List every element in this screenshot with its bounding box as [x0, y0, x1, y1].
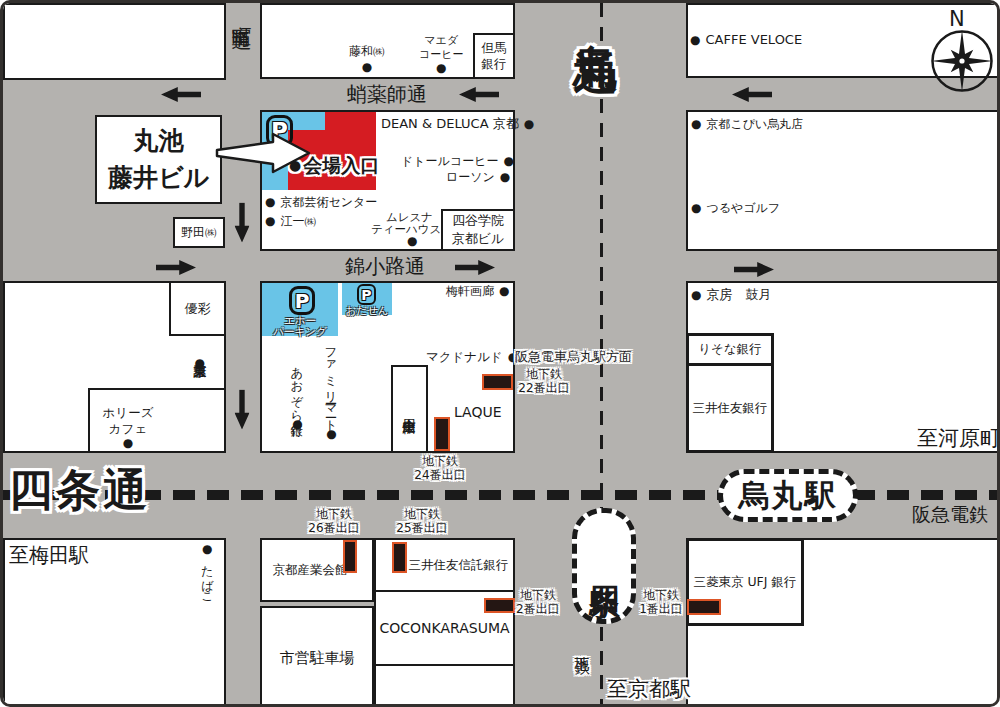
baiken-dot: ● [499, 285, 509, 297]
exit1-l2: 1番出口 [636, 602, 686, 616]
subway-exit24-marker [434, 417, 450, 451]
eho-parking-label: エホー パーキング [262, 315, 338, 337]
hollys-dot: ● [123, 437, 133, 449]
subway-exit2-marker [484, 598, 515, 613]
street-label-muromachi: 室町通 [230, 10, 254, 16]
poi-mcdonalds: マクドナルド ● [426, 349, 518, 364]
poi-kyobo-kogetsu: ● 京房 鼓月 [691, 287, 771, 303]
cocon-label: COCONKARASUMA [379, 620, 509, 636]
poi-doutor: ドトールコーヒー ● [401, 154, 514, 168]
exit26-l1: 地下鉄 [305, 507, 363, 521]
box-yusai: 優彩 [169, 281, 226, 336]
box-maruike-fujii: 丸池 藤井ビル [95, 115, 222, 204]
access-map: 室町通 藤和㈱ ● マエダ コーヒー ● 但馬 銀行 蛸薬師通 丸池 藤井ビル … [0, 0, 1000, 707]
shijo-station-label: 四条駅 [584, 563, 625, 569]
poi-mlesna-dot: ● [407, 235, 417, 247]
poi-lawson: ローソン ● [446, 170, 510, 184]
odasen-p: P [361, 287, 371, 303]
hankyu-direction-label: 阪急電車烏丸駅方面 [515, 349, 632, 365]
shijo-station-badge: 四条駅 [572, 508, 636, 624]
arrow-left-takoyakushi-2 [459, 87, 499, 102]
koichi-label: 江一㈱ [280, 214, 316, 228]
poi-kyoto-kopii: ● 京都こぴい烏丸店 [691, 117, 803, 131]
caffe-veloce-dot: ● [690, 34, 700, 46]
arrow-left-takoyakushi-1 [161, 87, 201, 102]
venue-entrance-text: 会場入口 [303, 154, 379, 177]
exit24-l1: 地下鉄 [411, 454, 469, 468]
aozora-label: あおぞら銀行 [290, 358, 305, 415]
poi-baiken-gallery: 梅軒画廊 ● [446, 284, 509, 298]
subway-exit25-label: 地下鉄 25番出口 [393, 507, 451, 536]
poi-maeda-coffee: マエダ コーヒー ● [419, 34, 464, 74]
odasen-parking-label: おだせん [342, 304, 392, 317]
doutor-dot: ● [503, 155, 513, 167]
tabako-label: たばこ [200, 557, 214, 598]
smtb-label: 三井住友信託銀行 [409, 557, 509, 574]
box-smbc: 三井住友銀行 [686, 363, 774, 453]
tajima-l2: 銀行 [482, 56, 507, 72]
arrow-right-nishikikoji-1 [156, 260, 196, 275]
compass-rose-icon [928, 27, 996, 95]
smbc-label: 三井住友銀行 [693, 400, 768, 417]
direction-to-kawaramachi: 至河原町 [917, 426, 1000, 451]
lawson-dot: ● [500, 171, 510, 183]
poi-hollys: ホリーズ カフェ ● [99, 405, 157, 449]
subway-exit1-marker [687, 599, 721, 615]
subway-label-bottom: 地下鉄 [573, 644, 591, 650]
baiken-label: 梅軒画廊 [446, 284, 494, 298]
box-chuo-shinkin: 中央信用金庫 [391, 365, 428, 453]
subway-exit25-marker [392, 542, 407, 573]
art-center-label: 京都芸術センター [280, 195, 377, 209]
exit25-l2: 25番出口 [393, 521, 451, 535]
box-noda: 野田㈱ [173, 217, 225, 248]
poi-towa: 藤和㈱ ● [349, 44, 385, 73]
arrow-down-muromachi-2 [235, 390, 250, 430]
doutor-label: ドトールコーヒー [401, 154, 498, 168]
ufj-label: 三菱東京 UFJ 銀行 [694, 574, 797, 591]
subway-exit22-label: 地下鉄 22番出口 [515, 367, 573, 396]
dean-deluca-dot: ● [524, 118, 534, 130]
poi-towa-dot: ● [362, 61, 372, 73]
box-tajima-bank: 但馬 銀行 [473, 33, 515, 79]
mcdonalds-label: マクドナルド [426, 349, 503, 364]
exit22-l2: 22番出口 [515, 381, 573, 395]
poi-tsuruya-golf: ● つるやゴルフ [691, 201, 780, 215]
street-label-takoyakushi: 蛸薬師通 [347, 82, 427, 106]
poi-family-mart: ファミリーマート ● [324, 339, 339, 440]
poi-caffe-veloce: ● CAFFE VELOCE [690, 32, 802, 48]
noda-label: 野田㈱ [181, 224, 217, 241]
poi-maeda-l2: コーヒー [419, 48, 464, 61]
hollys-l2: カフェ [109, 421, 147, 436]
parking-icon-odasen: P [357, 284, 376, 305]
box-risona-bank: りそな銀行 [686, 333, 774, 366]
parking-icon-eho: P [289, 286, 315, 315]
koichi-dot: ● [265, 215, 275, 227]
kopii-dot: ● [691, 118, 701, 130]
arrow-right-nishikikoji-2 [455, 260, 495, 275]
art-center-dot: ● [265, 196, 275, 208]
poi-tokai-tokyo: 東海東京証券 ● [192, 354, 208, 369]
direction-to-kyoto: 至京都駅 [607, 677, 691, 702]
poi-dean-deluca: DEAN & DELUCA 京都 ● [381, 116, 534, 132]
venue-pointer-arrow [215, 130, 313, 176]
hollys-l1: ホリーズ [103, 405, 154, 420]
exit24-l2: 24番出口 [411, 468, 469, 482]
tokai-dot: ● [195, 357, 205, 369]
eho-l2: パーキング [262, 326, 338, 337]
sangyo-label: 京都産業会館 [273, 562, 348, 579]
street-label-karasuma: 烏丸通 [569, 9, 622, 18]
yusai-label: 優彩 [185, 300, 211, 318]
kopii-label: 京都こぴい烏丸店 [706, 117, 803, 131]
exit26-l2: 26番出口 [305, 521, 363, 535]
exit22-l1: 地下鉄 [515, 367, 573, 381]
exit2-l2: 2番出口 [516, 602, 566, 616]
lawson-label: ローソン [446, 170, 495, 184]
eho-p: P [295, 289, 310, 313]
kyobo-label: 京房 鼓月 [706, 287, 771, 303]
block-top-left [3, 3, 226, 80]
dean-deluca-label: DEAN & DELUCA 京都 [381, 116, 519, 132]
yotsuya-l2: 京都ビル [452, 230, 505, 248]
risona-label: りそな銀行 [698, 341, 761, 358]
poi-kyoto-art-center: ● 京都芸術センター [265, 195, 377, 209]
poi-maeda-l1: マエダ [424, 34, 458, 47]
box-city-parking: 市営駐車場 [260, 606, 374, 707]
caffe-veloce-label: CAFFE VELOCE [705, 32, 802, 48]
arrow-right-nishikikoji-3 [734, 262, 774, 277]
box-yotsuya: 四谷学院 京都ビル [441, 209, 515, 251]
exit25-l1: 地下鉄 [393, 507, 451, 521]
kyobo-dot: ● [691, 289, 701, 301]
poi-koichi: ● 江一㈱ [265, 214, 316, 228]
subway-exit26-label: 地下鉄 26番出口 [305, 507, 363, 536]
poi-maeda-dot: ● [436, 62, 446, 74]
family-mart-label: ファミリーマート [324, 339, 339, 425]
exit2-l1: 地下鉄 [516, 588, 566, 602]
poi-tabako: ● たばこ [200, 543, 214, 598]
aozora-dot: ● [292, 418, 302, 430]
direction-to-umeda: 至梅田駅 [9, 543, 89, 567]
yotsuya-l1: 四谷学院 [452, 212, 505, 230]
subway-exit24-label: 地下鉄 24番出口 [411, 454, 469, 483]
city-parking-label: 市営駐車場 [280, 649, 355, 668]
poi-laque: LAQUE [454, 404, 502, 421]
subway-exit1-label: 地下鉄 1番出口 [636, 588, 686, 617]
maruike-l1: 丸池 [108, 123, 209, 159]
arrow-left-takoyakushi-3 [732, 87, 772, 102]
karasuma-station-label: 烏丸駅 [739, 475, 838, 517]
street-label-nishikikoji: 錦小路通 [345, 254, 425, 278]
hankyu-railway-label: 阪急電鉄 [912, 503, 988, 526]
tajima-l1: 但馬 [482, 40, 507, 56]
box-bottom-empty [374, 664, 515, 707]
tsuruya-label: つるやゴルフ [706, 201, 780, 215]
poi-aozora-bank: あおぞら銀行 ● [290, 358, 305, 430]
street-label-shijo: 四条通 [9, 464, 150, 517]
karasuma-station-badge: 烏丸駅 [718, 469, 858, 522]
subway-exit26-marker [343, 540, 357, 573]
arrow-down-muromachi-1 [235, 203, 250, 243]
tsuruya-dot: ● [691, 202, 701, 214]
tabako-dot: ● [202, 543, 212, 555]
maruike-l2: 藤井ビル [108, 160, 209, 196]
exit1-l1: 地下鉄 [636, 588, 686, 602]
poi-towa-label: 藤和㈱ [349, 44, 385, 58]
subway-exit22-marker [482, 374, 513, 390]
subway-exit2-label: 地下鉄 2番出口 [516, 588, 566, 617]
family-mart-dot: ● [326, 428, 336, 440]
